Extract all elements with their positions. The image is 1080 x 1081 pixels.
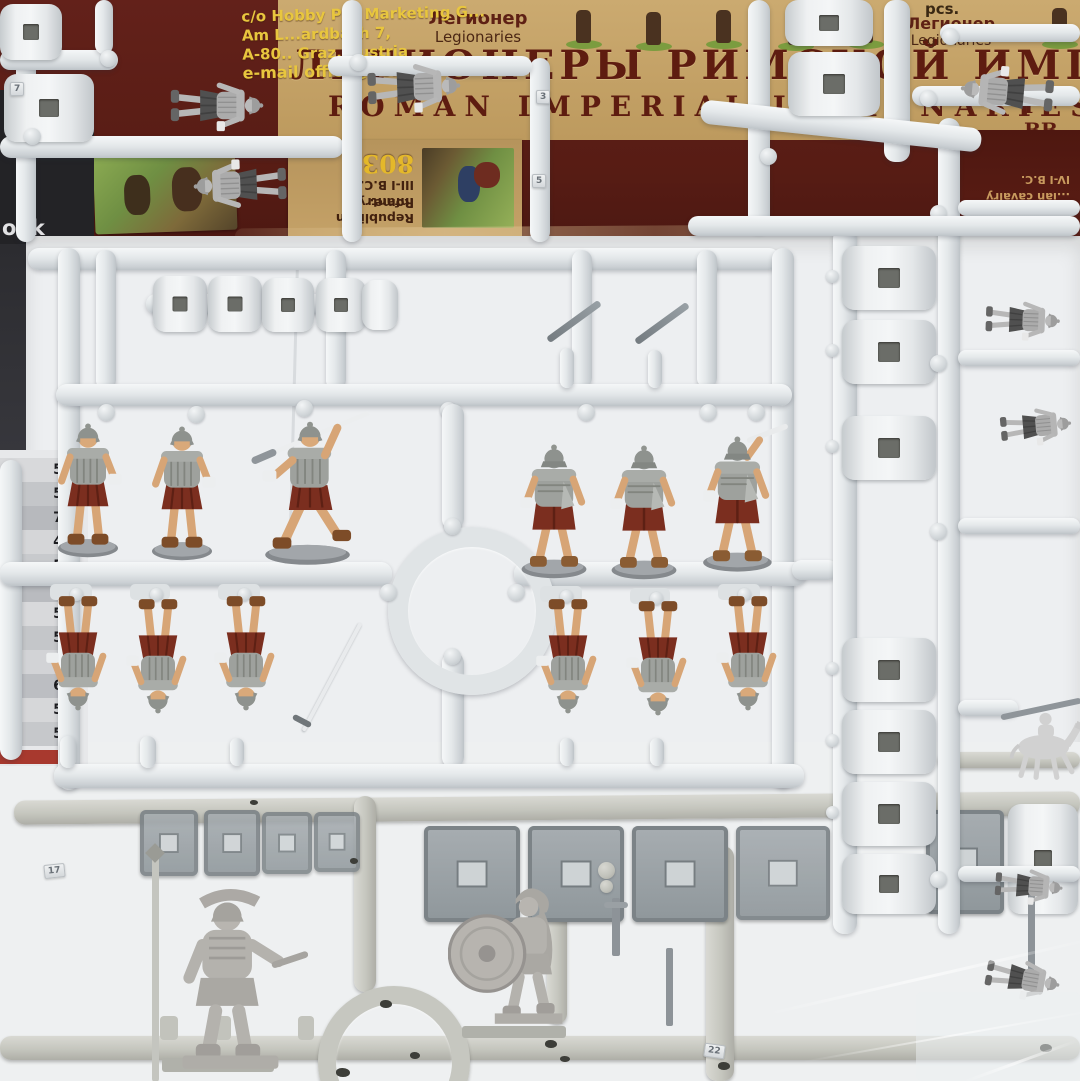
sprue-nub <box>826 270 839 283</box>
unpainted-figure <box>981 863 1080 910</box>
photo-canvas: pcs. Легионер Legionaries ЛЕГИОНЕРЫ РИМС… <box>0 0 1080 1081</box>
sprue-rail <box>56 384 792 406</box>
sprue-nub <box>444 648 461 665</box>
paint-chip <box>410 1052 420 1059</box>
sprue-nub <box>930 523 947 540</box>
paint-chip <box>336 1068 350 1077</box>
sprue-number-tag: 5 <box>532 174 546 188</box>
side-panel-art <box>422 148 514 228</box>
sprue-nub <box>760 148 777 165</box>
unpainted-figure <box>151 78 286 133</box>
signifer-figure <box>448 872 578 1030</box>
unpainted-figure <box>971 296 1076 344</box>
shield-hole <box>878 438 900 458</box>
paint-chip <box>250 800 258 805</box>
painted-legionary <box>146 415 218 565</box>
disc-part <box>600 880 613 893</box>
sprue-rail <box>140 736 156 768</box>
painted-legionary-back <box>608 436 680 582</box>
painted-legionary-hanging <box>44 585 112 725</box>
curved-shield-part <box>842 854 936 914</box>
sprue-rail <box>96 250 116 390</box>
curved-shield-part <box>842 638 936 702</box>
sprue-rail <box>95 0 113 54</box>
centurion-figure <box>148 882 308 1072</box>
shield-hole <box>823 74 845 94</box>
sprue-rail <box>28 248 780 270</box>
unpainted-figure <box>985 401 1080 452</box>
sprue-rail <box>560 348 574 388</box>
shield-hole <box>665 860 696 887</box>
unpainted-figure <box>169 155 309 215</box>
sprue-rail <box>342 0 362 242</box>
sprue-rail <box>530 58 550 242</box>
sprue-rail <box>650 738 664 766</box>
shield-hole <box>39 99 59 117</box>
paint-chip <box>545 1040 557 1048</box>
sprue-nub <box>930 355 947 372</box>
shield-hole <box>23 24 39 40</box>
sprue-nub <box>578 404 595 421</box>
sprue-nub <box>826 806 839 819</box>
paint-chip <box>718 1062 730 1070</box>
painted-legionary <box>52 412 124 562</box>
side-panel-line2: Infantry <box>357 195 414 210</box>
shield-hole <box>878 804 900 824</box>
curved-shield-part <box>262 278 314 332</box>
curved-shield-part <box>785 0 873 46</box>
rect-shield-part <box>632 826 728 922</box>
painted-legionary-hanging <box>714 585 782 725</box>
shield-hole <box>878 268 900 288</box>
shield-hole <box>334 298 348 312</box>
sprue-part <box>362 280 398 330</box>
painted-legionary-hanging <box>534 588 602 728</box>
sprue-rail <box>230 738 244 766</box>
sprue-nub <box>826 440 839 453</box>
curved-shield-part <box>208 276 262 332</box>
sprue-nub <box>942 28 959 45</box>
painted-legionary-throwing <box>246 398 374 566</box>
curved-shield-part <box>842 782 936 846</box>
curved-shield-part <box>316 278 366 332</box>
dagger-guard <box>604 902 628 908</box>
sprue-rail <box>688 216 1080 236</box>
paint-chip <box>560 1056 570 1062</box>
paint-chip <box>350 858 358 864</box>
sprue-nub <box>826 344 839 357</box>
shield-hole <box>879 875 899 893</box>
sprue-rail <box>940 24 1080 42</box>
curved-shield-part <box>842 320 936 384</box>
sprue-number-tag: 7 <box>10 82 24 96</box>
sprue-rail <box>958 350 1080 366</box>
art-figure-blob <box>474 162 500 188</box>
sprue-rail <box>648 350 662 388</box>
sprue-nub <box>930 871 947 888</box>
rect-shield-part <box>736 826 830 920</box>
painted-legionary-hanging <box>124 588 192 728</box>
rect-shield-part <box>262 812 312 874</box>
shield-hole <box>878 732 900 752</box>
sprue-rail <box>0 460 22 760</box>
curved-shield-part <box>842 416 936 480</box>
sprue-rail <box>54 764 804 788</box>
shield-hole <box>173 297 188 312</box>
sprue-rail <box>958 200 1080 216</box>
curved-shield-part <box>153 276 207 332</box>
shield-hole <box>222 833 242 853</box>
shield-hole <box>228 297 243 312</box>
sprue-nub <box>24 128 41 145</box>
curved-shield-part <box>842 710 936 774</box>
right-panel-era: IV-I B.C. <box>1021 173 1070 186</box>
curved-shield-part <box>842 246 936 310</box>
sprue-nub <box>920 90 937 107</box>
sprue-nub <box>380 584 397 601</box>
side-panel-era: III-I B.C. <box>360 178 414 192</box>
sprue-rail <box>697 250 717 388</box>
sprue-nub <box>826 662 839 675</box>
curved-shield-part <box>788 52 880 116</box>
sprue-number-tag: 3 <box>536 90 550 104</box>
sprue-rail <box>958 518 1080 534</box>
shield-hole <box>281 298 295 312</box>
sword-part <box>666 948 673 1026</box>
sprue-nub <box>508 584 525 601</box>
unpainted-figure <box>935 59 1075 126</box>
sprue-number-tag: 22 <box>703 1043 725 1060</box>
painted-legionary-back <box>518 435 590 581</box>
shield-hole <box>878 342 900 362</box>
sprue-rail <box>442 404 464 530</box>
painted-legionary-hanging <box>212 585 280 725</box>
sprue-nub <box>826 734 839 747</box>
disc-part <box>598 862 615 879</box>
paint-chip <box>380 1000 392 1008</box>
shield-hole <box>878 660 900 680</box>
shield-hole <box>278 834 296 853</box>
sprue-number-tag: 17 <box>43 863 65 879</box>
sprue-rail <box>60 736 76 768</box>
shield-hole <box>819 15 839 31</box>
sprue-rail <box>792 560 838 580</box>
rect-shield-part <box>204 810 260 876</box>
rect-shield-part <box>140 810 198 876</box>
shield-hole <box>768 860 798 887</box>
sprue-nub <box>100 50 117 67</box>
art-figure-blob <box>124 175 151 216</box>
unpainted-figure <box>346 57 486 117</box>
painted-legionary-sword <box>686 418 790 576</box>
sprue-nub <box>444 518 461 535</box>
curved-shield-part <box>0 4 62 60</box>
painted-legionary-hanging <box>624 590 692 730</box>
sprue-rail <box>560 738 574 766</box>
shield-hole <box>329 833 346 851</box>
